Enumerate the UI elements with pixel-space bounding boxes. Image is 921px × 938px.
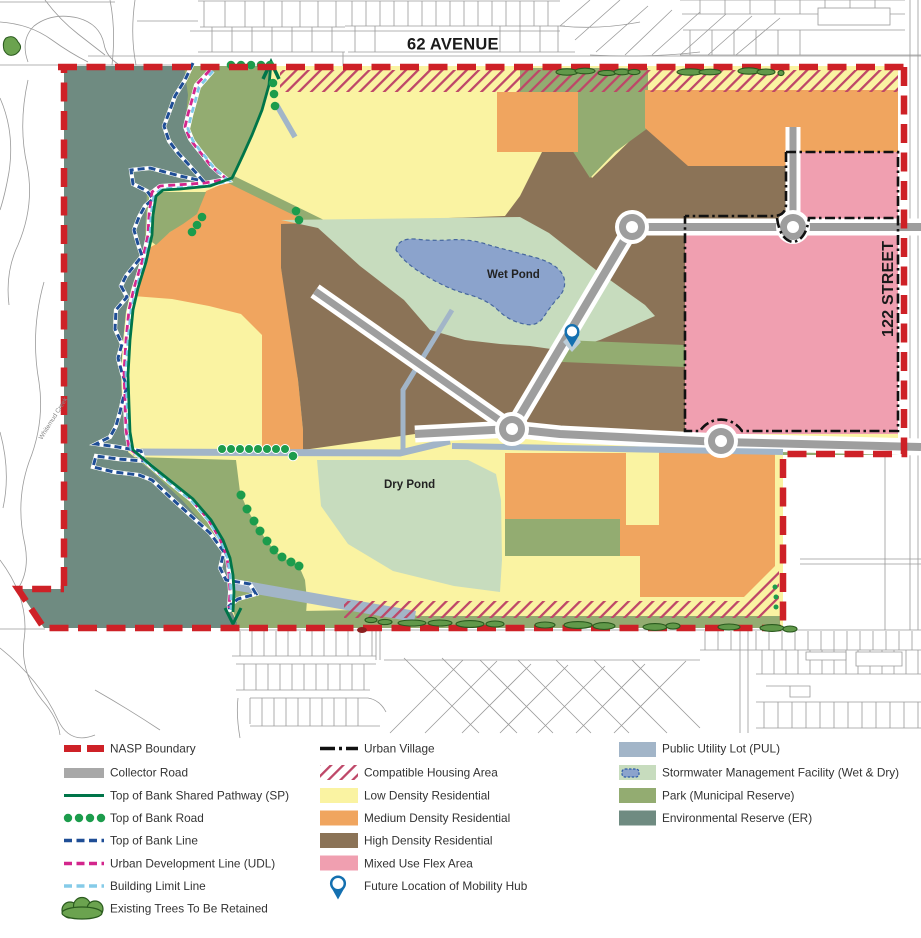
- svg-text:Wet Pond: Wet Pond: [487, 269, 540, 281]
- svg-text:Low Density Residential: Low Density Residential: [364, 789, 490, 803]
- svg-text:Top of Bank Shared Pathway (SP: Top of Bank Shared Pathway (SP): [110, 789, 289, 803]
- svg-text:62 AVENUE: 62 AVENUE: [407, 36, 499, 54]
- svg-text:Environmental Reserve (ER): Environmental Reserve (ER): [662, 811, 812, 825]
- svg-text:Dry Pond: Dry Pond: [384, 479, 435, 491]
- svg-text:122 STREET: 122 STREET: [880, 241, 897, 337]
- svg-text:Building Limit Line: Building Limit Line: [110, 879, 206, 893]
- svg-text:Urban Development Line (UDL): Urban Development Line (UDL): [110, 857, 275, 871]
- svg-text:Existing Trees To Be Retained: Existing Trees To Be Retained: [110, 902, 268, 916]
- svg-text:Collector Road: Collector Road: [110, 766, 188, 780]
- svg-text:Medium Density Residential: Medium Density Residential: [364, 811, 510, 825]
- svg-text:Mixed Use Flex Area: Mixed Use Flex Area: [364, 857, 473, 871]
- svg-text:Stormwater Management Facility: Stormwater Management Facility (Wet & Dr…: [662, 766, 899, 780]
- svg-text:NASP Boundary: NASP Boundary: [110, 742, 196, 756]
- svg-text:High Density Residential: High Density Residential: [364, 834, 493, 848]
- svg-text:Public Utility Lot (PUL): Public Utility Lot (PUL): [662, 742, 780, 756]
- svg-text:Park (Municipal Reserve): Park (Municipal Reserve): [662, 789, 794, 803]
- svg-text:Urban Village: Urban Village: [364, 742, 435, 756]
- svg-text:Compatible Housing Area: Compatible Housing Area: [364, 766, 498, 780]
- svg-text:Top of Bank Line: Top of Bank Line: [110, 834, 198, 848]
- svg-text:Top of Bank Road: Top of Bank Road: [110, 811, 204, 825]
- svg-text:Future Location of Mobility Hu: Future Location of Mobility Hub: [364, 879, 528, 893]
